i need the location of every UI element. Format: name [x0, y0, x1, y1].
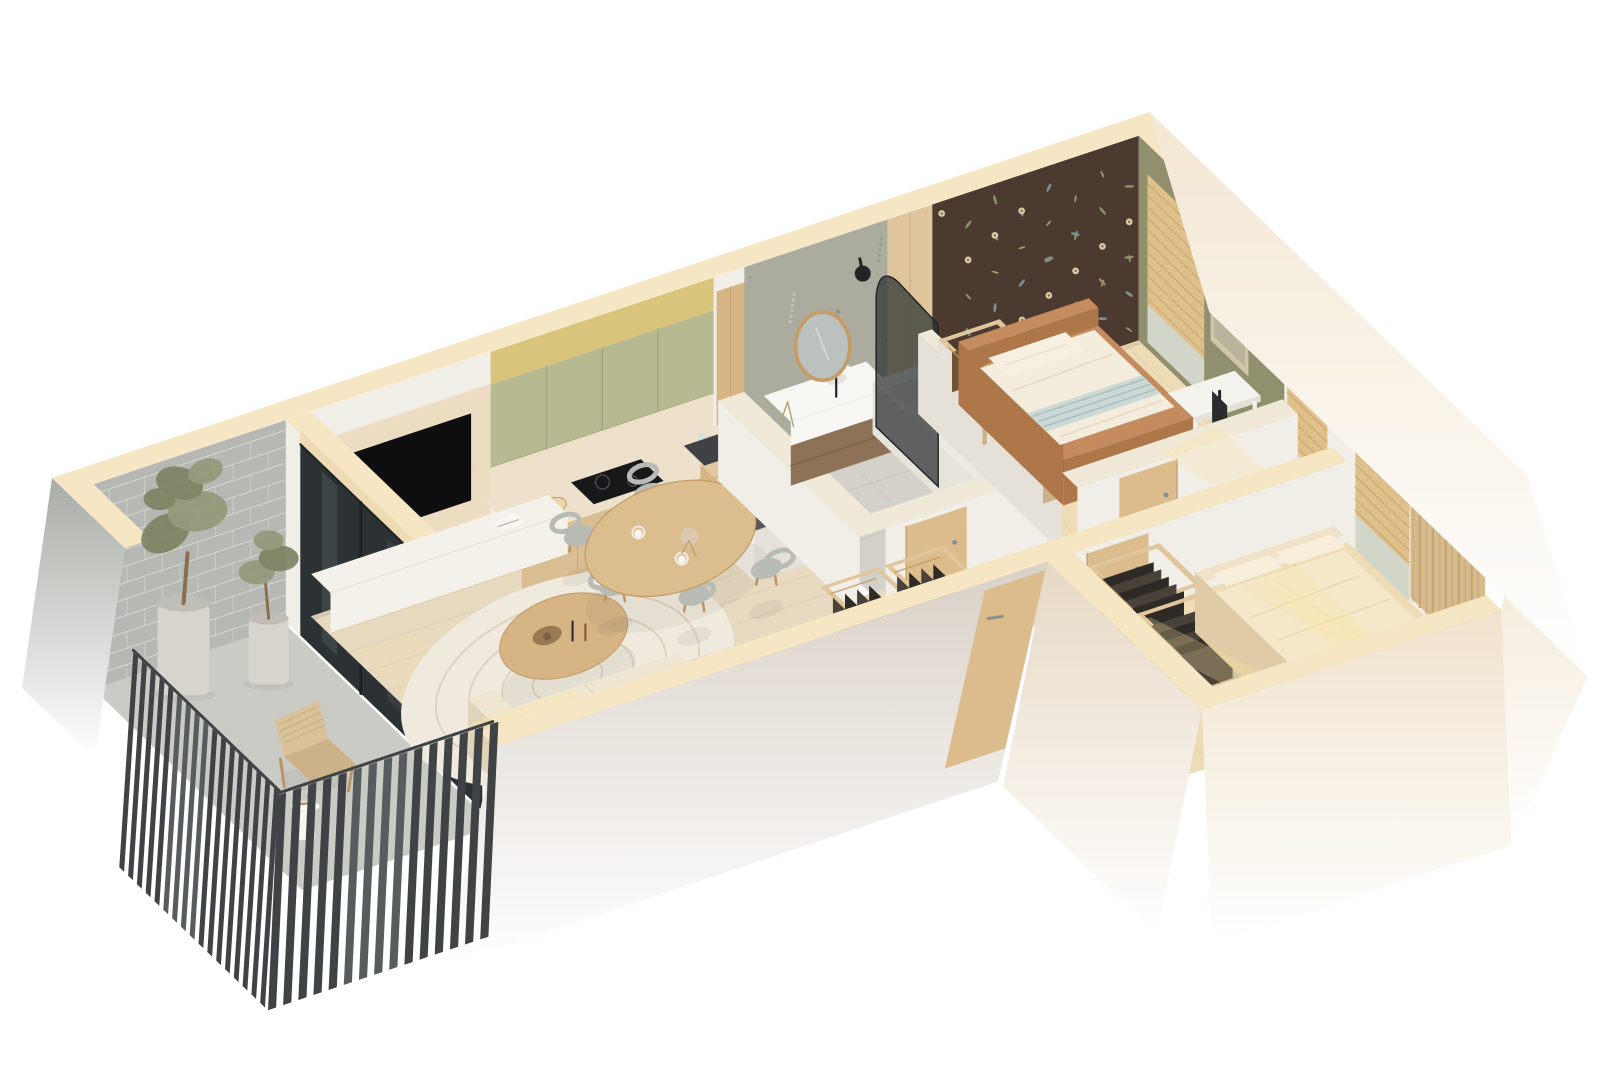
floor-plan-stage	[0, 0, 1600, 1067]
floor-plan-render	[0, 0, 1600, 1067]
